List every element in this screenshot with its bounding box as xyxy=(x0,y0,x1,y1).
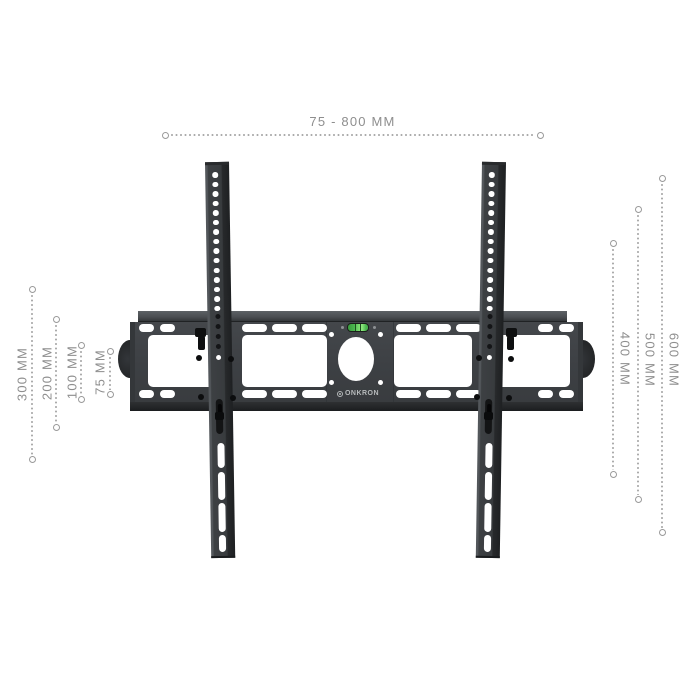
vesa-hole xyxy=(487,296,493,302)
brand-logo: ONKRON xyxy=(336,389,380,398)
vesa-slot xyxy=(485,443,492,468)
dimension-label-500mm: 500 MM xyxy=(643,333,658,387)
vesa-hole xyxy=(213,210,219,216)
vesa-hole xyxy=(489,181,495,187)
vesa-slot xyxy=(217,472,224,500)
dimension-endpoint-icon xyxy=(610,471,617,478)
dimension-endpoint-icon xyxy=(537,132,544,139)
plate-slot-hole xyxy=(272,390,297,398)
spacer-screw-icon xyxy=(506,395,512,401)
dimension-line-100mm xyxy=(80,351,82,395)
hook-pin xyxy=(215,412,224,420)
vesa-hole xyxy=(215,344,220,349)
vesa-hole xyxy=(215,306,221,312)
dimension-label-width-range: 75 - 800 MM xyxy=(170,114,535,129)
plate-slot-hole xyxy=(559,324,574,332)
cable-cutout xyxy=(338,337,374,381)
vesa-slot xyxy=(483,535,490,552)
vesa-hole xyxy=(213,191,219,197)
plate-slot-hole xyxy=(242,324,267,332)
plate-slot-hole xyxy=(396,390,421,398)
vesa-hole xyxy=(489,191,495,197)
vesa-hole xyxy=(216,355,221,360)
dimension-line-400mm xyxy=(612,249,614,470)
plate-slot-hole xyxy=(559,390,574,398)
vesa-hole xyxy=(488,248,494,254)
vesa-hole xyxy=(487,334,492,339)
vesa-hole xyxy=(214,277,220,283)
plate-cutout-window xyxy=(394,335,472,387)
vesa-hole xyxy=(488,267,494,273)
vesa-hole xyxy=(487,314,492,319)
plate-slot-hole xyxy=(302,390,327,398)
dimension-label-75mm: 75 MM xyxy=(93,349,108,395)
plate-slot-hole xyxy=(272,324,297,332)
vesa-hole xyxy=(487,324,492,329)
dimension-line-300mm xyxy=(31,295,33,455)
dimension-endpoint-icon xyxy=(29,286,36,293)
plate-slot-hole xyxy=(538,324,553,332)
dimension-endpoint-icon xyxy=(162,132,169,139)
vesa-hole xyxy=(215,314,220,319)
dimension-endpoint-icon xyxy=(659,175,666,182)
plate-slot-hole xyxy=(538,390,553,398)
vesa-slot xyxy=(218,503,225,532)
dimension-line-600mm xyxy=(661,184,663,528)
vesa-hole xyxy=(213,229,219,235)
vesa-hole xyxy=(488,229,494,235)
vesa-hole xyxy=(214,287,220,293)
vesa-hole xyxy=(488,210,494,216)
mounting-hole xyxy=(378,332,383,337)
dimension-label-300mm: 300 MM xyxy=(15,347,30,401)
wall-plate-bottom-rail xyxy=(130,402,583,411)
plate-slot-hole xyxy=(160,390,175,398)
vesa-hole xyxy=(215,334,220,339)
vesa-slot xyxy=(484,503,491,532)
vesa-hole xyxy=(212,172,218,178)
vesa-hole xyxy=(489,172,495,178)
plate-slot-hole xyxy=(396,324,421,332)
dimension-label-600mm: 600 MM xyxy=(667,333,682,387)
vesa-hole xyxy=(488,220,494,226)
brand-emblem-icon xyxy=(337,391,343,397)
dimension-line-top xyxy=(171,134,533,136)
vesa-slot xyxy=(217,443,224,468)
vesa-hole xyxy=(214,267,220,273)
dimension-line-500mm xyxy=(637,215,639,495)
mounting-hole xyxy=(378,380,383,385)
plate-slot-hole xyxy=(426,390,451,398)
vesa-slot xyxy=(484,472,491,500)
plate-slot-hole xyxy=(242,390,267,398)
dimension-endpoint-icon xyxy=(610,240,617,247)
hook-pin xyxy=(484,412,493,420)
dimension-endpoint-icon xyxy=(107,348,114,355)
plate-cutout-window xyxy=(242,335,327,387)
dimension-line-75mm xyxy=(109,357,111,390)
level-screw-icon xyxy=(373,326,376,329)
vesa-hole xyxy=(213,182,219,188)
dimension-line-200mm xyxy=(55,325,57,423)
vesa-hole xyxy=(213,201,219,207)
vesa-hole xyxy=(489,201,495,207)
dimension-label-200mm: 200 MM xyxy=(40,346,55,400)
dimension-endpoint-icon xyxy=(659,529,666,536)
vesa-hole xyxy=(214,258,220,264)
vesa-slot xyxy=(218,535,225,552)
vesa-hole xyxy=(214,296,220,302)
vesa-hole xyxy=(487,287,493,293)
vesa-hole xyxy=(487,306,493,312)
vesa-hole xyxy=(214,248,220,254)
spacer-screw-icon xyxy=(228,356,234,362)
mounting-hole xyxy=(329,380,334,385)
spacer-screw-icon xyxy=(230,395,236,401)
plate-slot-hole xyxy=(160,324,175,332)
brand-name: ONKRON xyxy=(345,389,379,398)
vesa-hole xyxy=(215,324,220,329)
plate-slot-hole xyxy=(139,390,154,398)
spacer-screw-icon xyxy=(474,394,480,400)
spacer-screw-icon xyxy=(198,394,204,400)
dimension-label-400mm: 400 MM xyxy=(618,332,633,386)
dimension-endpoint-icon xyxy=(53,316,60,323)
vesa-hole xyxy=(486,355,491,360)
spacer-screw-icon xyxy=(476,355,482,361)
dimension-endpoint-icon xyxy=(53,424,60,431)
spacer-screw-icon xyxy=(508,356,514,362)
dimension-endpoint-icon xyxy=(635,206,642,213)
vesa-hole xyxy=(487,277,493,283)
level-screw-icon xyxy=(341,326,344,329)
tv-wall-mount-dimension-diagram: 75 - 800 MM 400 MM 500 MM 600 MM 300 MM … xyxy=(0,0,700,700)
dimension-endpoint-icon xyxy=(29,456,36,463)
spacer-screw-icon xyxy=(196,355,202,361)
vesa-hole xyxy=(488,258,494,264)
plate-slot-hole xyxy=(139,324,154,332)
vesa-hole xyxy=(487,344,492,349)
vesa-hole xyxy=(213,239,219,245)
dimension-label-100mm: 100 MM xyxy=(65,345,80,399)
mounting-hole xyxy=(329,332,334,337)
dimension-endpoint-icon xyxy=(635,496,642,503)
vesa-hole xyxy=(488,239,494,245)
bubble-level-icon xyxy=(347,323,369,332)
plate-slot-hole xyxy=(456,324,481,332)
dimension-endpoint-icon xyxy=(107,391,114,398)
locking-clamp-right xyxy=(507,336,514,350)
plate-slot-hole xyxy=(302,324,327,332)
locking-clamp-left xyxy=(198,336,205,350)
vesa-hole xyxy=(213,220,219,226)
plate-slot-hole xyxy=(426,324,451,332)
